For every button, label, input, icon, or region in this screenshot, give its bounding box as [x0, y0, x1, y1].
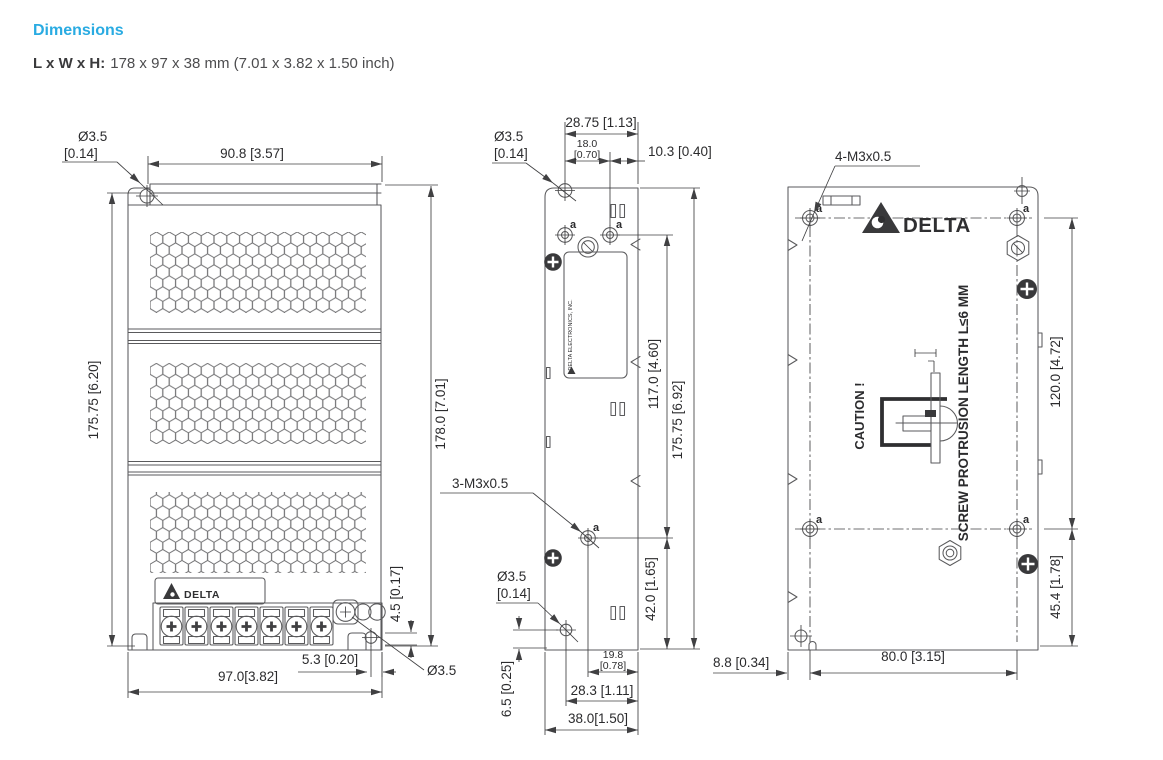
front-top-width: 90.8 [3.57]	[220, 146, 284, 161]
front-logo-text: DELTA	[184, 589, 220, 601]
side-sticker: DELTA ELECTRONICS, INC.	[564, 252, 627, 378]
hole-label-a: a	[816, 514, 823, 526]
back-thread-callout: 4-M3x0.5	[835, 149, 891, 164]
terminal-cell	[185, 607, 208, 645]
caution-graphic: CAUTION ! SCREW PROTRUSION LENGTH L≤6 MM	[852, 285, 971, 541]
hole-label-a: a	[1023, 203, 1030, 215]
front-bottom-width: 97.0[3.82]	[218, 669, 278, 684]
side-top-width-right: 10.3 [0.40]	[648, 144, 712, 159]
delta-logo-triangle	[163, 583, 180, 599]
side-bottom-inner-in: [0.78]	[600, 660, 626, 672]
front-vent-panels	[150, 232, 366, 573]
front-label-sticker: DELTA	[155, 578, 265, 604]
screw-plate	[931, 373, 940, 463]
hole-label-a: a	[816, 203, 823, 215]
hole-label-a: a	[593, 522, 600, 534]
terminal-cell	[210, 607, 233, 645]
foot-right	[348, 633, 366, 650]
terminal-cell	[235, 607, 258, 645]
side-bottom-hole-offset: 6.5 [0.25]	[499, 661, 514, 717]
back-view: a a a a DELTA CAUTION ! SCREW PROTRUSION…	[713, 149, 1078, 680]
side-thread-callout: 3-M3x0.5	[452, 476, 508, 491]
foot-left	[132, 634, 147, 650]
back-logo: DELTA	[862, 202, 971, 237]
front-height-left: 175.75 [6.20]	[86, 361, 101, 440]
front-hole-callout-in: [0.14]	[64, 146, 98, 161]
side-height-holes: 117.0 [4.60]	[646, 339, 661, 409]
side-bottom-hole-in: [0.14]	[497, 586, 531, 601]
front-view: DELTA	[62, 129, 456, 698]
back-bottom-width: 80.0 [3.15]	[881, 649, 945, 664]
side-hole-callout-in: [0.14]	[494, 146, 528, 161]
side-height-full: 175.75 [6.92]	[670, 381, 685, 460]
hole-label-a: a	[616, 219, 623, 231]
front-hole-offset: 5.3 [0.20]	[302, 652, 358, 667]
side-hole-callout-mm: Ø3.5	[494, 129, 523, 144]
protrusion-note: SCREW PROTRUSION LENGTH L≤6 MM	[956, 285, 971, 541]
vent-panel-middle	[150, 363, 366, 444]
vent-panel-bottom	[150, 492, 366, 573]
back-height-lower: 45.4 [1.78]	[1048, 555, 1063, 619]
back-logo-text: DELTA	[903, 214, 971, 237]
vent-slot	[823, 196, 860, 205]
terminal-cell	[310, 607, 333, 645]
hole-label-a: a	[570, 219, 577, 231]
dimension-drawing: DELTA	[0, 0, 1163, 760]
front-terminal-height: 4.5 [0.17]	[388, 566, 403, 622]
terminal-cell	[260, 607, 283, 645]
side-height-lower: 42.0 [1.65]	[643, 557, 658, 621]
front-terminal-block	[132, 600, 385, 650]
side-bottom-width-full: 38.0[1.50]	[568, 711, 628, 726]
side-bottom-width-mid: 28.3 [1.11]	[571, 683, 634, 698]
side-outline	[545, 180, 640, 650]
caution-text: CAUTION !	[852, 382, 867, 449]
front-height-right: 178.0 [7.01]	[433, 378, 448, 449]
back-height-holes: 120.0 [4.72]	[1048, 336, 1063, 407]
terminal-cell	[160, 607, 183, 645]
hex-nut	[939, 541, 961, 566]
back-outline	[788, 177, 1042, 650]
side-top-width-full: 28.75 [1.13]	[565, 115, 636, 130]
potentiometer	[333, 600, 385, 624]
front-hole-callout-mm: Ø3.5	[78, 129, 107, 144]
side-top-inner-in: [0.70]	[574, 149, 600, 161]
front-bottom-hole-callout: Ø3.5	[427, 663, 456, 678]
terminal-cell	[285, 607, 308, 645]
side-bottom-hole-mm: Ø3.5	[497, 569, 526, 584]
hole-label-a: a	[1023, 514, 1030, 526]
side-sticker-text: DELTA ELECTRONICS, INC.	[568, 299, 574, 371]
side-view: a a a DELTA ELECTRONICS, INC. Ø3.5 [0.14…	[440, 115, 712, 735]
vent-panel-top	[150, 232, 366, 313]
back-screw-holes: a a a a	[800, 203, 1038, 574]
back-centerlines	[795, 218, 1032, 642]
side-screw-holes: a a a	[544, 219, 623, 640]
back-bottom-offset: 8.8 [0.34]	[713, 655, 769, 670]
side-dimensions: Ø3.5 [0.14] 28.75 [1.13] 18.0 [0.70] 10.…	[440, 115, 712, 735]
